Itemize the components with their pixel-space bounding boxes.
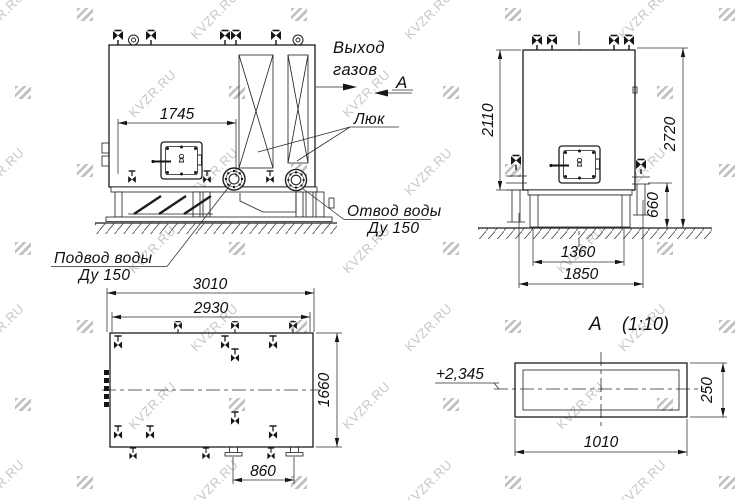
- valve-icon: [146, 31, 156, 46]
- valve-icon: [269, 336, 277, 349]
- side-top-valves: [532, 36, 634, 51]
- valve-icon: [624, 36, 634, 51]
- water-outlet-flange: [285, 169, 306, 190]
- plan-valves: [114, 322, 297, 460]
- dim-section-width-text: 1010: [584, 434, 619, 451]
- plan-bottom-nozzles: [225, 447, 303, 456]
- drain-valve-icon: [128, 171, 136, 183]
- valve-icon: [174, 322, 182, 333]
- valve-icon: [609, 36, 619, 51]
- valve-icon: [114, 426, 122, 439]
- level-mark: +2,345: [435, 366, 499, 389]
- front-top-valves: [113, 31, 303, 46]
- dim-plan-nozzle-spacing: 860: [233, 457, 294, 484]
- water-inlet-label-line1: Подвод воды: [54, 250, 153, 267]
- dim-section-height: 250: [690, 363, 727, 417]
- water-outlet-label-line1: Отвод воды: [347, 203, 442, 220]
- dim-side-frame-height: 660: [645, 183, 672, 228]
- dim-plan-body-length: 2930: [112, 300, 310, 332]
- view-direction-arrow: А: [374, 73, 413, 97]
- valve-icon: [231, 322, 239, 333]
- water-inlet-label-line2: Ду 150: [77, 267, 130, 284]
- plan-view: 3010 2930 1660: [102, 276, 342, 484]
- valve-icon: [289, 322, 297, 333]
- front-hatch-door: [151, 142, 202, 179]
- water-inlet-flange: [223, 168, 245, 190]
- dim-plan-body-length-text: 2930: [193, 300, 229, 317]
- valve-icon: [221, 336, 229, 349]
- boiler-technical-drawing: KVZR.RUKVZR.RUKVZR.RUKVZR.RUKVZR.RUKVZR.…: [0, 0, 750, 500]
- dim-plan-width-text: 1660: [316, 372, 333, 407]
- level-mark-text: +2,345: [436, 366, 484, 383]
- dim-side-overall-width-text: 1850: [564, 266, 599, 283]
- valve-icon: [220, 31, 230, 46]
- gas-outlet-label-line1: Выход: [333, 39, 385, 57]
- valve-icon: [202, 448, 209, 459]
- drain-valve-icon: [266, 171, 274, 183]
- valve-icon: [532, 36, 542, 51]
- valve-icon: [267, 448, 274, 459]
- dim-plan-overall-length-text: 3010: [193, 276, 228, 293]
- side-ground: [478, 228, 712, 239]
- plan-hinge-marks: [104, 370, 109, 407]
- dim-side-body-height: 2110: [480, 50, 521, 190]
- water-outlet-label-line2: Ду 150: [366, 220, 419, 237]
- front-ground: [95, 223, 337, 234]
- dim-front-width-text: 1745: [160, 106, 195, 123]
- valve-icon: [231, 349, 239, 362]
- valve-icon: [271, 31, 281, 46]
- lifting-eye-icon: [293, 35, 303, 45]
- valve-icon: [146, 426, 154, 439]
- dim-side-frame-height-text: 660: [645, 192, 662, 218]
- gas-flow-arrow: [316, 84, 357, 91]
- valve-icon: [129, 448, 136, 459]
- lifting-eye-icon: [129, 35, 139, 45]
- section-letter: А: [588, 314, 602, 335]
- valve-icon: [231, 31, 241, 46]
- hatch-callout: Люк: [258, 111, 399, 161]
- front-gas-duct-panels: [239, 55, 308, 168]
- side-support-frame: [528, 190, 632, 227]
- section-scale: (1:10): [622, 314, 669, 334]
- valve-icon: [269, 426, 277, 439]
- dim-side-overall-height-text: 2720: [662, 116, 679, 152]
- drain-valve-icon: [203, 171, 211, 183]
- dim-side-frame-width-text: 1360: [561, 244, 596, 261]
- front-body: [109, 45, 315, 187]
- side-view: 2110 2720 660: [478, 31, 712, 288]
- valve-icon: [113, 31, 123, 46]
- dim-plan-width: 1660: [316, 333, 342, 447]
- drawing-canvas: 1745: [0, 0, 750, 500]
- hatch-label: Люк: [353, 111, 385, 128]
- dim-section-height-text: 250: [699, 377, 716, 404]
- valve-icon: [231, 412, 239, 425]
- gas-outlet-label-line2: газов: [333, 61, 378, 79]
- valve-icon: [114, 336, 122, 349]
- valve-icon: [636, 160, 646, 175]
- valve-icon: [511, 156, 521, 171]
- section-view: А (1:10) +2,345 1010: [435, 314, 727, 456]
- dim-side-body-height-text: 2110: [480, 103, 497, 138]
- dim-plan-nozzle-spacing-text: 860: [250, 463, 276, 480]
- valve-icon: [547, 36, 557, 51]
- front-support-frame: [106, 187, 334, 222]
- view-arrow-letter: А: [395, 73, 407, 92]
